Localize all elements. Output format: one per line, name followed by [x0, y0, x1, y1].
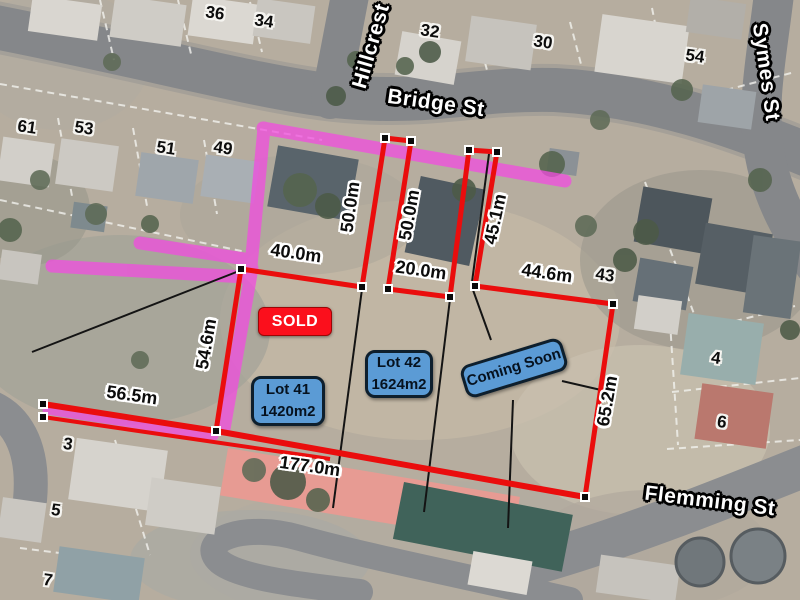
tank	[676, 538, 724, 586]
house-number-54: 54	[684, 46, 705, 65]
house-number-53: 53	[73, 118, 94, 137]
house-number-30: 30	[532, 32, 553, 51]
lot-42-name: Lot 42	[377, 352, 421, 375]
house-4-building	[680, 313, 764, 385]
house-6-building	[694, 383, 773, 448]
lot-41-area: 1420m2	[260, 401, 315, 424]
house-number-32: 32	[419, 21, 440, 40]
tank	[731, 529, 785, 583]
aerial-map: Hillcrest Bridge St Symes St Flemming St…	[0, 0, 800, 600]
sold-badge-text: SOLD	[272, 313, 318, 331]
lot-41-label: Lot 41 1420m2	[251, 376, 325, 426]
house-number-61: 61	[16, 117, 37, 136]
house-number-43: 43	[594, 265, 615, 284]
house-number-36: 36	[204, 3, 225, 22]
house-number-49: 49	[212, 138, 233, 157]
house-number-51: 51	[155, 138, 176, 157]
lot-42-label: Lot 42 1624m2	[365, 350, 433, 398]
lot-42-area: 1624m2	[371, 374, 426, 397]
lot-41-name: Lot 41	[266, 379, 310, 402]
house-number-34: 34	[253, 11, 274, 30]
sold-badge: SOLD	[258, 307, 332, 336]
